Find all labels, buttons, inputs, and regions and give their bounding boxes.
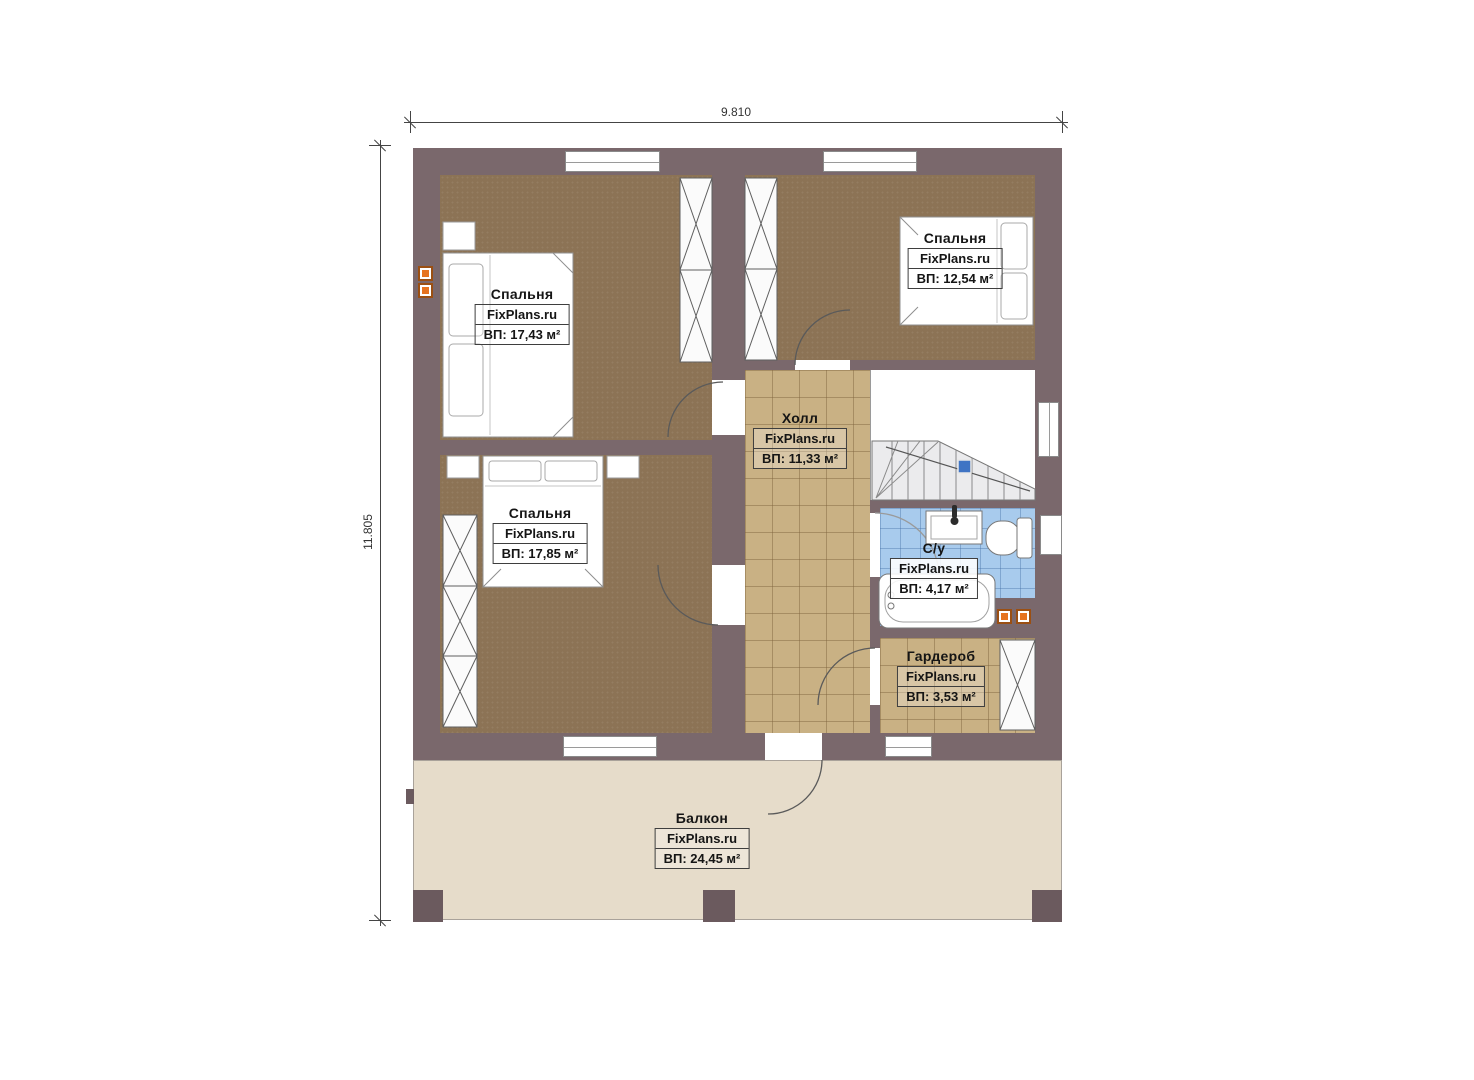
room-area: ВП: 17,85 м² xyxy=(494,543,587,563)
room-brand: FixPlans.ru xyxy=(476,305,569,324)
door-arc-bedroom-tr xyxy=(795,310,850,365)
closet-bedroom-tr xyxy=(745,178,777,360)
room-info-box: FixPlans.ru ВП: 4,17 м² xyxy=(890,558,978,599)
room-brand: FixPlans.ru xyxy=(656,829,749,848)
room-label-hall: Холл FixPlans.ru ВП: 11,33 м² xyxy=(753,410,847,469)
room-label-bedroom-mid-left: Спальня FixPlans.ru ВП: 17,85 м² xyxy=(493,505,588,564)
door-arc-balcony xyxy=(768,760,822,814)
stairs xyxy=(872,441,1035,500)
room-area: ВП: 3,53 м² xyxy=(898,686,984,706)
room-area: ВП: 11,33 м² xyxy=(754,448,846,468)
floor-plan-canvas: 9.810 11.805 xyxy=(0,0,1474,1080)
sink xyxy=(926,505,982,544)
closet-wardrobe-room xyxy=(1000,640,1035,730)
room-title: Спальня xyxy=(493,505,588,521)
room-title: С/у xyxy=(890,540,978,556)
room-label-balcony: Балкон FixPlans.ru ВП: 24,45 м² xyxy=(655,810,750,869)
room-brand: FixPlans.ru xyxy=(494,524,587,543)
room-info-box: FixPlans.ru ВП: 17,43 м² xyxy=(475,304,570,345)
stair-marker xyxy=(958,460,971,473)
room-info-box: FixPlans.ru ВП: 11,33 м² xyxy=(753,428,847,469)
plan-vector-overlay xyxy=(0,0,1474,1080)
room-area: ВП: 4,17 м² xyxy=(891,578,977,598)
nightstand-bedroom-tl xyxy=(443,222,475,250)
nightstand-bedroom-ml-right xyxy=(607,456,639,478)
room-area: ВП: 24,45 м² xyxy=(656,848,749,868)
door-arc-bedroom-ml xyxy=(658,565,718,625)
room-area: ВП: 12,54 м² xyxy=(909,268,1002,288)
toilet xyxy=(986,518,1032,558)
room-label-bedroom-top-right: Спальня FixPlans.ru ВП: 12,54 м² xyxy=(908,230,1003,289)
room-info-box: FixPlans.ru ВП: 24,45 м² xyxy=(655,828,750,869)
room-info-box: FixPlans.ru ВП: 12,54 м² xyxy=(908,248,1003,289)
door-arc-bedroom-tl xyxy=(668,382,723,437)
room-area: ВП: 17,43 м² xyxy=(476,324,569,344)
room-label-wardrobe: Гардероб FixPlans.ru ВП: 3,53 м² xyxy=(897,648,985,707)
room-brand: FixPlans.ru xyxy=(909,249,1002,268)
room-label-bathroom: С/у FixPlans.ru ВП: 4,17 м² xyxy=(890,540,978,599)
room-brand: FixPlans.ru xyxy=(891,559,977,578)
room-title: Холл xyxy=(753,410,847,426)
room-title: Балкон xyxy=(655,810,750,826)
room-info-box: FixPlans.ru ВП: 3,53 м² xyxy=(897,666,985,707)
room-label-bedroom-top-left: Спальня FixPlans.ru ВП: 17,43 м² xyxy=(475,286,570,345)
nightstand-bedroom-ml-left xyxy=(447,456,479,478)
room-brand: FixPlans.ru xyxy=(754,429,846,448)
closet-bedroom-tl xyxy=(680,178,712,362)
room-brand: FixPlans.ru xyxy=(898,667,984,686)
room-title: Спальня xyxy=(908,230,1003,246)
closet-bedroom-ml xyxy=(443,515,477,727)
room-title: Спальня xyxy=(475,286,570,302)
door-arc-wardrobe xyxy=(818,648,875,705)
room-title: Гардероб xyxy=(897,648,985,664)
room-info-box: FixPlans.ru ВП: 17,85 м² xyxy=(493,523,588,564)
